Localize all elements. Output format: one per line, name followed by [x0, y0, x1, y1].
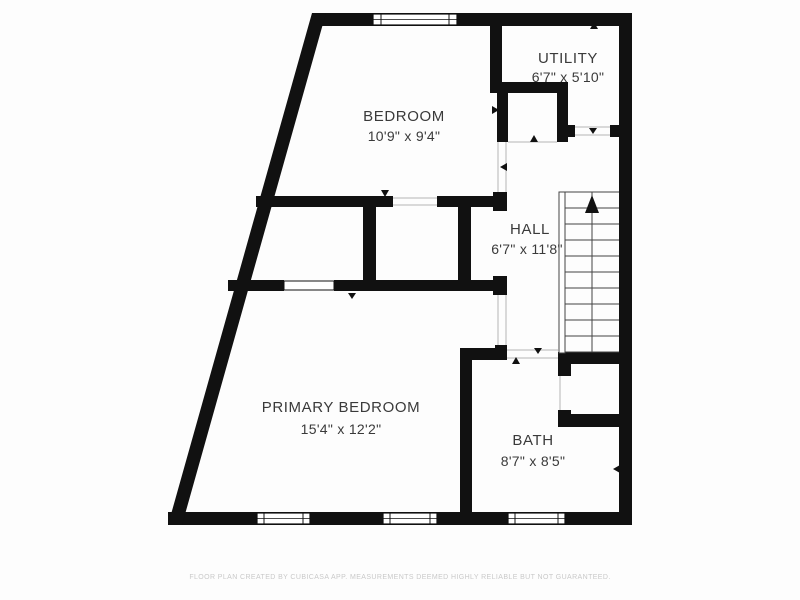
room-label-primary-bedroom: PRIMARY BEDROOM: [262, 399, 420, 416]
floor-plan-canvas: BEDROOM 10'9" x 9'4" UTILITY 6'7" x 5'10…: [0, 0, 800, 600]
wall-midstrip-south-right: [334, 280, 493, 291]
marker-bath-east-icon: [613, 465, 620, 473]
room-label-bath: BATH: [512, 432, 553, 449]
marker-hall-closet-icon: [530, 135, 538, 142]
room-label-bedroom: BEDROOM: [363, 108, 445, 125]
wall-right: [619, 13, 632, 525]
opening-lines: [393, 127, 610, 410]
wall-utility-door-stub-left: [557, 125, 575, 137]
wall-bath-nook-south: [558, 414, 622, 427]
footer-disclaimer: FLOOR PLAN CREATED BY CUBICASA APP. MEAS…: [189, 574, 610, 581]
sliding-closet-opening: [284, 281, 334, 290]
wall-bath-nook-stub-top: [558, 352, 571, 376]
room-dims-bedroom: 10'9" x 9'4": [368, 128, 441, 144]
window-bottom-middle: [383, 513, 437, 524]
room-dims-utility: 6'7" x 5'10": [532, 69, 605, 85]
marker-bedroom-closet-icon: [381, 190, 389, 197]
staircase: [559, 192, 619, 353]
wall-utility-west: [490, 13, 502, 87]
wall-bath-west: [460, 348, 472, 512]
stairs-up-arrow-icon: [585, 195, 599, 213]
stair-treads: [565, 192, 619, 352]
floor-plan: BEDROOM 10'9" x 9'4" UTILITY 6'7" x 5'10…: [0, 0, 800, 600]
window-top: [373, 14, 457, 25]
room-dims-primary-bedroom: 15'4" x 12'2": [301, 421, 382, 437]
wall-cap-hall-north: [493, 192, 507, 211]
stair-rail: [559, 192, 565, 353]
window-bottom-left: [257, 513, 310, 524]
room-label-hall: HALL: [510, 221, 550, 238]
wall-bedroom-closet-east: [458, 196, 471, 291]
room-dims-hall: 6'7" x 11'8": [491, 241, 563, 257]
wall-closet-divider: [363, 196, 376, 291]
wall-midstrip-south-left: [228, 280, 284, 291]
wall-top: [312, 13, 632, 26]
wall-utility-door-stub-right: [610, 125, 619, 137]
marker-utility-door-icon: [589, 128, 597, 134]
wall-cap-hall-mid: [493, 276, 507, 295]
wall-hall-closet-west: [497, 93, 508, 142]
interior-walls: [228, 13, 632, 512]
wall-left-slanted: [168, 13, 326, 525]
marker-bedroom-door-icon: [500, 163, 507, 171]
marker-bath-door-out-icon: [534, 348, 542, 354]
room-labels: BEDROOM 10'9" x 9'4" UTILITY 6'7" x 5'10…: [262, 50, 605, 469]
room-dims-bath: 8'7" x 8'5": [501, 453, 566, 469]
window-bottom-right: [508, 513, 565, 524]
marker-primary-closet-icon: [348, 293, 356, 299]
room-label-utility: UTILITY: [538, 50, 598, 67]
